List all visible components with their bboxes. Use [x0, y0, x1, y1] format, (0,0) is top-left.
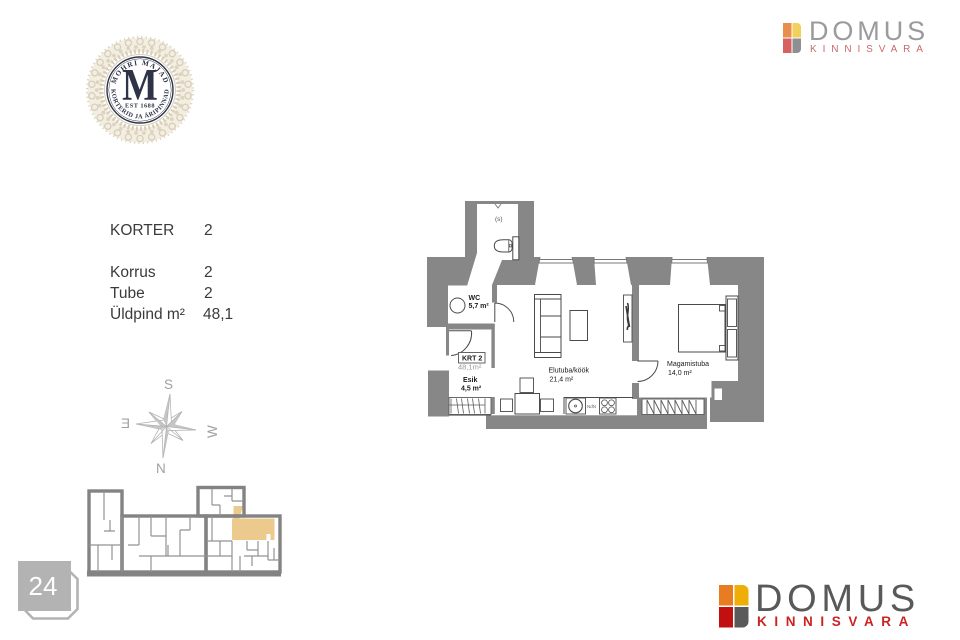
- svg-text:5,7 m²: 5,7 m²: [469, 303, 490, 310]
- svg-text:WC: WC: [469, 295, 481, 302]
- svg-text:N: N: [156, 461, 166, 476]
- svg-text:14,0 m²: 14,0 m²: [668, 370, 692, 377]
- svg-text:S: S: [164, 377, 173, 392]
- svg-text:48,1m²: 48,1m²: [458, 363, 482, 372]
- svg-text:Magamistuba: Magamistuba: [667, 361, 709, 368]
- svg-text:21,4 m²: 21,4 m²: [550, 377, 574, 384]
- svg-text:W: W: [205, 425, 220, 438]
- svg-text:Elutuba/köök: Elutuba/köök: [549, 368, 590, 375]
- svg-text:KRT 2: KRT 2: [462, 356, 482, 363]
- svg-text:24: 24: [29, 571, 58, 601]
- svg-text:4,5 m²: 4,5 m²: [461, 386, 482, 393]
- svg-text:(s): (s): [495, 216, 503, 223]
- svg-text:NdN: NdN: [587, 404, 596, 409]
- svg-text:Esik: Esik: [463, 377, 478, 384]
- svg-text:E: E: [121, 416, 130, 431]
- svg-text:EST 1688: EST 1688: [125, 103, 155, 110]
